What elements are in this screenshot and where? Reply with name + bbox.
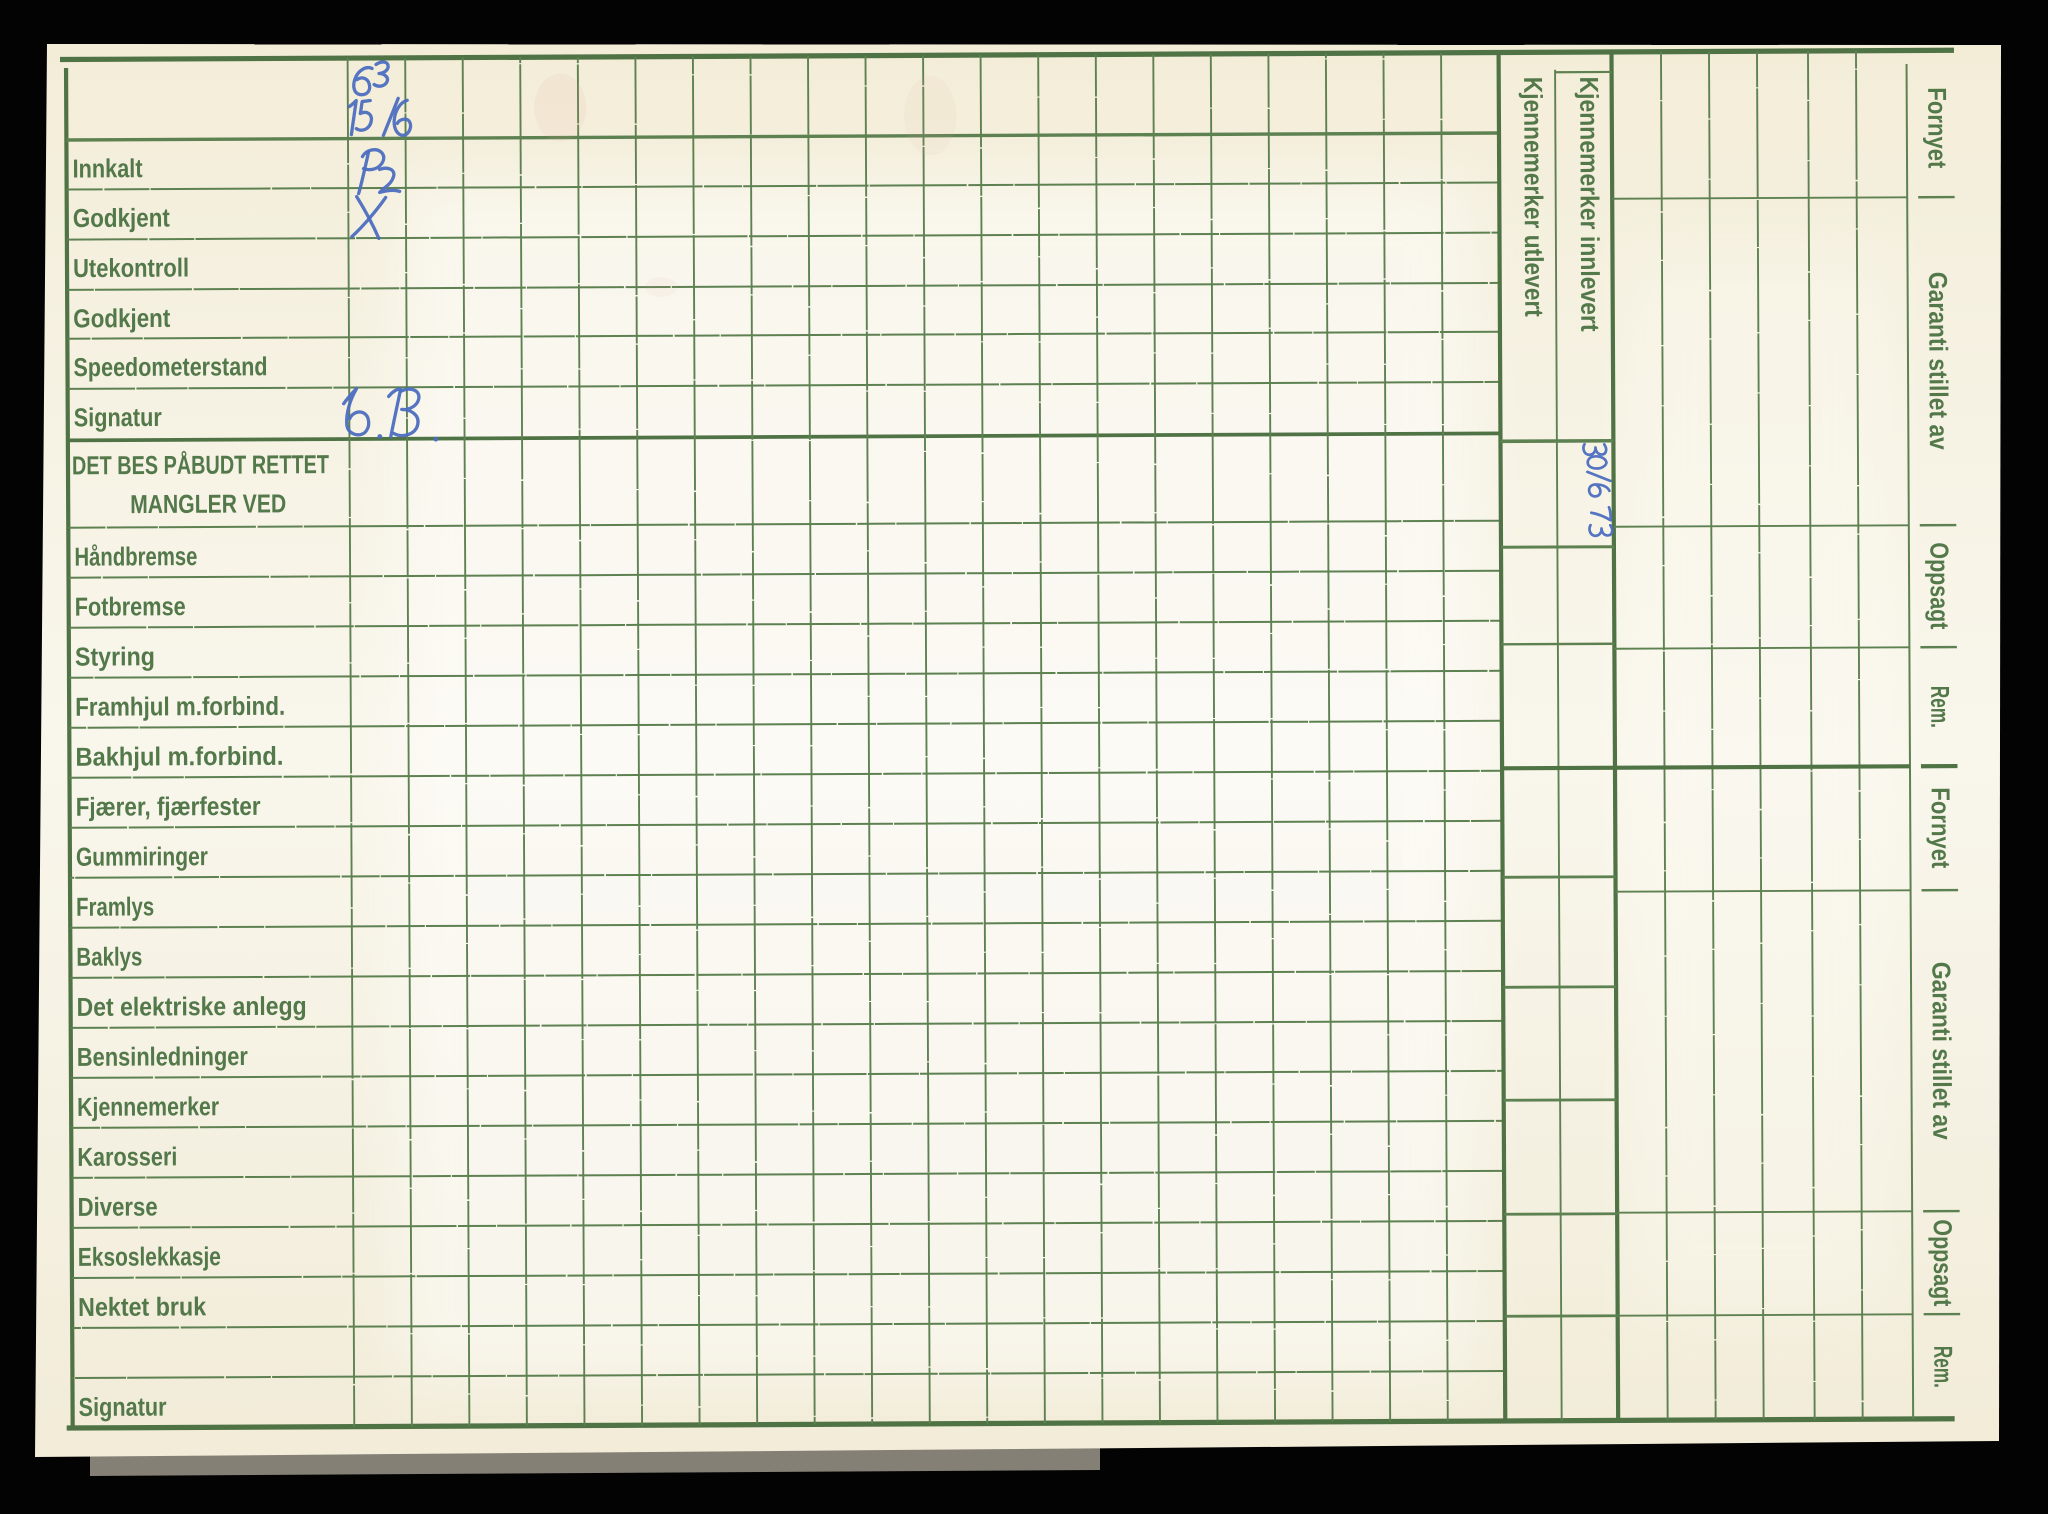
svg-text:Utekontroll: Utekontroll (73, 253, 189, 284)
svg-text:DET BES PÅBUDT RETTET: DET BES PÅBUDT RETTET (72, 449, 329, 480)
svg-text:Håndbremse: Håndbremse (74, 541, 197, 572)
svg-text:Rem.: Rem. (1928, 1346, 1958, 1388)
svg-text:Innkalt: Innkalt (72, 153, 142, 183)
svg-text:Signatur: Signatur (79, 1392, 167, 1422)
svg-text:Kjennemerker: Kjennemerker (77, 1091, 219, 1122)
svg-text:Fornyet: Fornyet (1922, 87, 1952, 168)
svg-text:Nektet bruk: Nektet bruk (78, 1291, 207, 1322)
svg-text:Fotbremse: Fotbremse (75, 591, 186, 622)
svg-text:Oppsagt: Oppsagt (1928, 1219, 1958, 1306)
svg-text:Speedometerstand: Speedometerstand (73, 351, 267, 382)
svg-text:Oppsagt: Oppsagt (1924, 542, 1954, 629)
svg-text:Karosseri: Karosseri (77, 1141, 177, 1171)
svg-text:Godkjent: Godkjent (73, 303, 170, 333)
svg-text:Kjennemerker utlevert: Kjennemerker utlevert (1518, 77, 1549, 317)
svg-text:Bensinledninger: Bensinledninger (77, 1041, 248, 1072)
svg-text:Det elektriske anlegg: Det elektriske anlegg (77, 991, 307, 1022)
svg-text:Diverse: Diverse (78, 1191, 158, 1221)
svg-text:Bakhjul m.forbind.: Bakhjul m.forbind. (75, 741, 283, 772)
svg-text:Eksoslekkasje: Eksoslekkasje (78, 1241, 221, 1272)
svg-text:MANGLER VED: MANGLER VED (130, 488, 286, 519)
svg-text:Godkjent: Godkjent (73, 202, 170, 232)
svg-text:Baklys: Baklys (76, 941, 142, 971)
svg-text:Signatur: Signatur (74, 402, 162, 432)
svg-text:Garanti stillet av: Garanti stillet av (1926, 962, 1957, 1141)
svg-text:Fornyet: Fornyet (1926, 787, 1956, 868)
svg-text:Kjennemerker innlevert: Kjennemerker innlevert (1574, 76, 1605, 331)
svg-text:Framhjul m.forbind.: Framhjul m.forbind. (75, 691, 285, 722)
svg-text:Styring: Styring (75, 641, 155, 671)
svg-text:Framlys: Framlys (76, 891, 154, 921)
svg-text:Rem.: Rem. (1925, 686, 1955, 728)
svg-text:Garanti stillet av: Garanti stillet av (1923, 272, 1954, 451)
svg-text:Gummiringer: Gummiringer (76, 841, 208, 872)
svg-text:Fjærer, fjærfester: Fjærer, fjærfester (76, 791, 261, 822)
